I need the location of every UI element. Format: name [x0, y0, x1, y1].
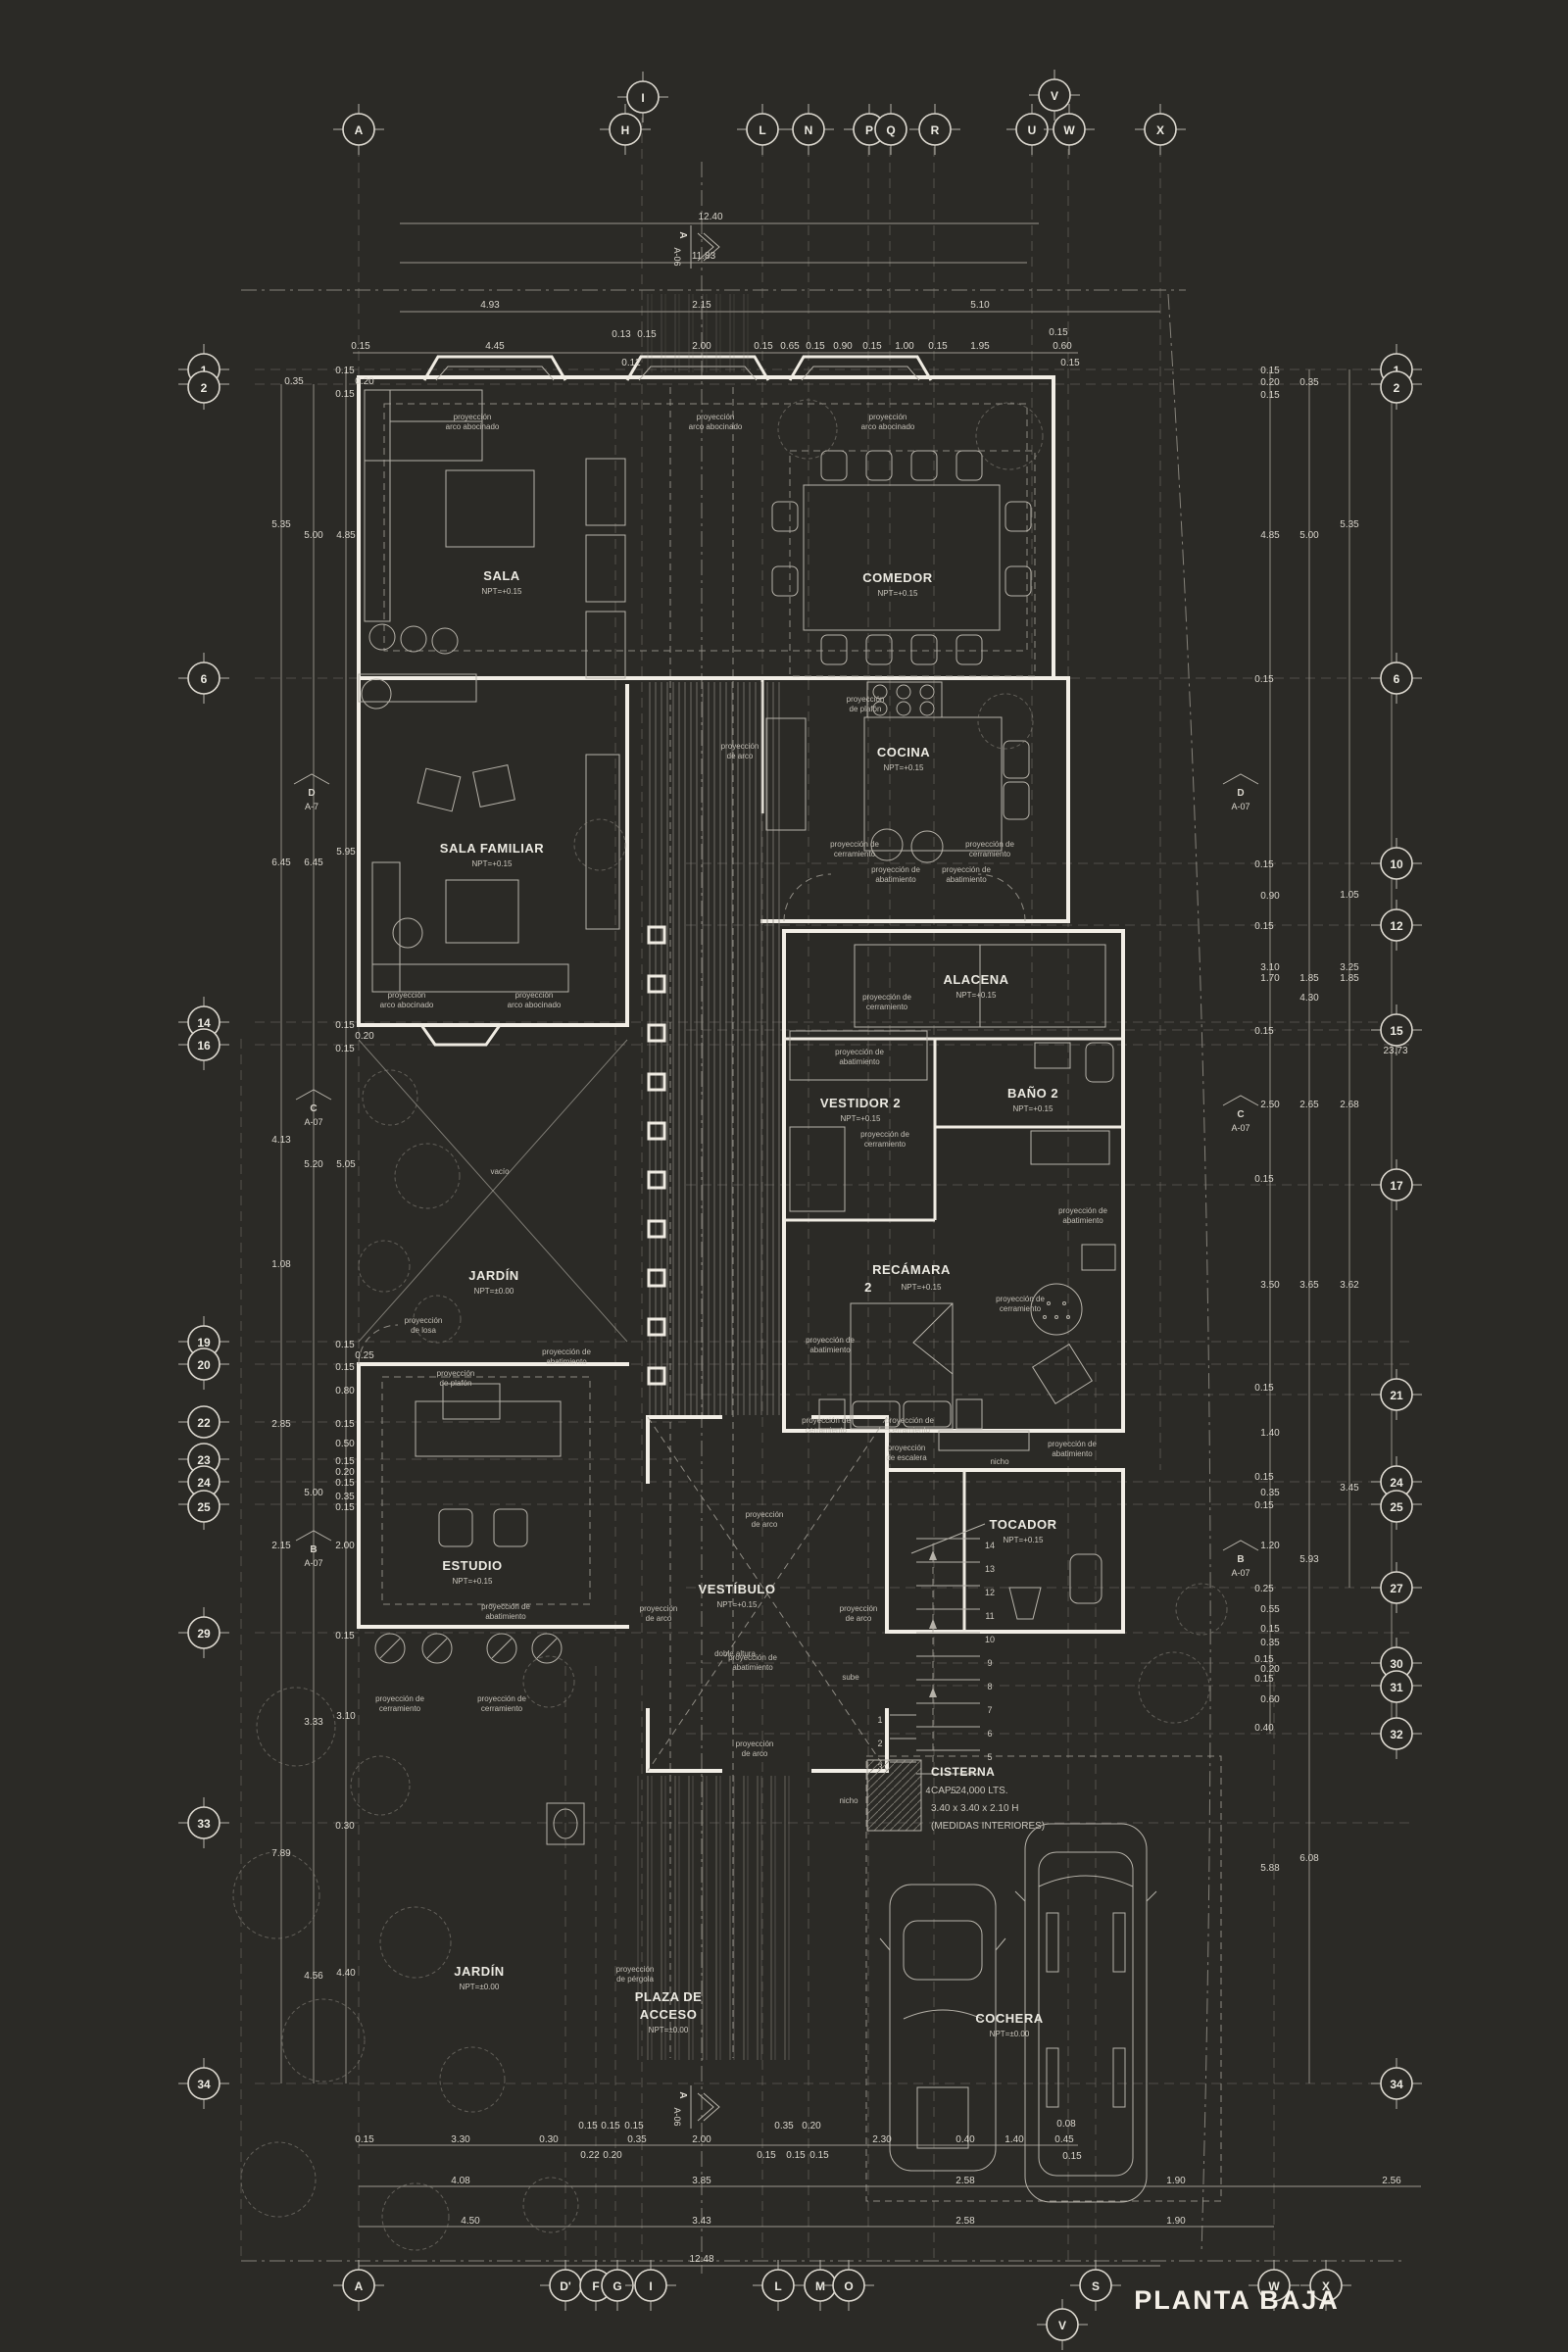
svg-text:abatimiento: abatimiento — [809, 1346, 851, 1354]
svg-text:10: 10 — [1390, 857, 1403, 871]
svg-text:1.85: 1.85 — [1299, 973, 1319, 984]
stair-number: 14 — [985, 1541, 995, 1550]
grid-bubble: 33 — [178, 1797, 229, 1848]
grid-bubble: N — [783, 104, 834, 155]
svg-text:NPT=+0.15: NPT=+0.15 — [482, 587, 522, 596]
svg-text:22: 22 — [197, 1416, 211, 1430]
svg-text:proyección de: proyección de — [728, 1653, 777, 1662]
svg-text:0.15: 0.15 — [1260, 390, 1280, 401]
svg-text:A: A — [677, 2091, 688, 2098]
svg-text:NPT=±0.00: NPT=±0.00 — [460, 1983, 500, 1991]
svg-text:de plafón: de plafón — [850, 705, 882, 713]
svg-text:23: 23 — [197, 1453, 211, 1467]
svg-text:1.70: 1.70 — [1260, 973, 1280, 984]
svg-text:V: V — [1051, 89, 1058, 103]
svg-text:0.15: 0.15 — [1254, 1500, 1274, 1511]
svg-text:3.65: 3.65 — [1299, 1280, 1319, 1291]
svg-text:arco abocinado: arco abocinado — [508, 1001, 562, 1009]
svg-text:0.55: 0.55 — [1260, 1604, 1280, 1615]
grid-bubble: 2 — [1371, 371, 1422, 410]
svg-text:0.60: 0.60 — [1260, 1694, 1280, 1705]
stair-number: 11 — [985, 1611, 994, 1621]
svg-text:0.20: 0.20 — [355, 1031, 374, 1042]
svg-text:de arco: de arco — [742, 1749, 768, 1758]
svg-text:N: N — [805, 123, 813, 137]
svg-text:proyección: proyección — [847, 695, 885, 704]
svg-text:proyección de: proyección de — [375, 1694, 424, 1703]
svg-text:0.40: 0.40 — [1254, 1723, 1274, 1734]
room-cochera: COCHERA — [975, 2011, 1043, 2026]
svg-text:2.58: 2.58 — [955, 2216, 975, 2227]
svg-text:D: D — [1237, 788, 1244, 799]
grid-bubble: S — [1070, 2260, 1121, 2311]
svg-text:D: D — [308, 788, 315, 799]
grid-bubble: A — [333, 2260, 384, 2311]
svg-text:2.68: 2.68 — [1340, 1100, 1359, 1110]
svg-text:3.45: 3.45 — [1340, 1483, 1359, 1494]
svg-text:0.15: 0.15 — [1260, 366, 1280, 376]
svg-text:NPT=+0.15: NPT=+0.15 — [841, 1114, 881, 1123]
svg-text:0.15: 0.15 — [928, 341, 948, 352]
svg-text:arco abocinado: arco abocinado — [689, 422, 743, 431]
svg-text:2: 2 — [1394, 381, 1400, 395]
room-bano2: BAÑO 2 — [1007, 1086, 1058, 1101]
room-sala: SALA — [483, 568, 520, 583]
svg-text:L: L — [759, 123, 765, 137]
svg-text:abatimiento: abatimiento — [732, 1663, 773, 1672]
svg-text:0.15: 0.15 — [806, 341, 825, 352]
svg-text:2.00: 2.00 — [692, 341, 711, 352]
svg-text:proyección: proyección — [388, 991, 426, 1000]
svg-text:de losa: de losa — [411, 1326, 436, 1335]
svg-text:proyección de: proyección de — [942, 865, 991, 874]
grid-bubble: W — [1044, 104, 1095, 155]
svg-text:0.20: 0.20 — [1260, 377, 1280, 388]
svg-text:proyección de: proyección de — [481, 1602, 530, 1611]
grid-bubble: 25 — [178, 1491, 229, 1530]
svg-text:NPT=+0.15: NPT=+0.15 — [956, 991, 997, 1000]
svg-text:C: C — [310, 1103, 317, 1114]
svg-text:arco abocinado: arco abocinado — [446, 422, 500, 431]
svg-text:0.20: 0.20 — [603, 2150, 622, 2161]
deck-hatch — [637, 294, 796, 2060]
svg-text:proyección de: proyección de — [871, 865, 920, 874]
svg-text:2.15: 2.15 — [692, 300, 711, 311]
svg-text:I: I — [641, 91, 644, 105]
vacio-label: vacío — [490, 1167, 510, 1176]
svg-text:1.90: 1.90 — [1166, 2216, 1186, 2227]
svg-text:NPT=+0.15: NPT=+0.15 — [902, 1283, 942, 1292]
stair-number: 7 — [987, 1705, 992, 1715]
svg-text:0.15: 0.15 — [335, 366, 355, 376]
svg-text:0.35: 0.35 — [335, 1492, 355, 1502]
svg-text:1.90: 1.90 — [1166, 2176, 1186, 2186]
stair-number: 2 — [877, 1739, 882, 1748]
svg-text:proyección: proyección — [736, 1739, 774, 1748]
svg-text:proyección: proyección — [437, 1369, 475, 1378]
grid-bubble: 10 — [1371, 838, 1422, 889]
svg-text:proyección: proyección — [515, 991, 554, 1000]
stair-number: 12 — [985, 1588, 995, 1597]
room-vestidor2: VESTIDOR 2 — [820, 1096, 901, 1110]
svg-text:25: 25 — [197, 1500, 211, 1514]
svg-text:0.30: 0.30 — [539, 2134, 559, 2145]
stair-number: 3 — [877, 1762, 882, 1772]
svg-text:1.85: 1.85 — [1340, 973, 1359, 984]
svg-text:abatimiento: abatimiento — [1052, 1449, 1093, 1458]
svg-text:0.15: 0.15 — [757, 2150, 776, 2161]
svg-text:D': D' — [560, 2279, 571, 2293]
room-alacena: ALACENA — [943, 972, 1008, 987]
svg-text:1.05: 1.05 — [1340, 890, 1359, 901]
grid-bubble: L — [737, 104, 788, 155]
svg-text:1.08: 1.08 — [271, 1259, 291, 1270]
grid-bubble: 15 — [1371, 1004, 1422, 1055]
svg-text:proyección: proyección — [697, 413, 735, 421]
svg-text:5.20: 5.20 — [304, 1159, 323, 1170]
svg-text:4.85: 4.85 — [1260, 530, 1280, 541]
svg-text:4.50: 4.50 — [461, 2216, 480, 2227]
svg-text:NPT=+0.15: NPT=+0.15 — [717, 1600, 758, 1609]
svg-text:2.56: 2.56 — [1382, 2176, 1401, 2186]
svg-text:3.33: 3.33 — [304, 1717, 323, 1728]
svg-text:5.00: 5.00 — [304, 530, 323, 541]
grid-bubble: 29 — [178, 1607, 229, 1658]
svg-text:proyección de: proyección de — [996, 1295, 1045, 1303]
svg-text:de pérgola: de pérgola — [616, 1975, 654, 1984]
svg-text:0.15: 0.15 — [335, 1044, 355, 1054]
grid-bubble: L — [753, 2260, 804, 2311]
svg-text:R: R — [931, 123, 940, 137]
svg-text:CAP. 24,000 LTS.: CAP. 24,000 LTS. — [931, 1786, 1008, 1796]
svg-text:1.40: 1.40 — [1260, 1428, 1280, 1439]
svg-text:3.10: 3.10 — [1260, 962, 1280, 973]
svg-text:0.15: 0.15 — [624, 2121, 644, 2131]
svg-text:4.40: 4.40 — [336, 1968, 356, 1979]
room-recamara2: RECÁMARA — [872, 1262, 951, 1277]
svg-text:0.15: 0.15 — [355, 2134, 374, 2145]
svg-text:0.15: 0.15 — [1062, 2151, 1082, 2162]
svg-text:2.85: 2.85 — [271, 1419, 291, 1430]
svg-text:proyección de: proyección de — [1048, 1440, 1097, 1448]
svg-text:34: 34 — [197, 2078, 211, 2091]
svg-text:0.15: 0.15 — [335, 1631, 355, 1641]
svg-text:0.08: 0.08 — [1056, 2119, 1076, 2130]
svg-text:proyección de: proyección de — [830, 840, 879, 849]
svg-text:A-07: A-07 — [304, 1117, 322, 1127]
stair-number: 9 — [987, 1658, 992, 1668]
svg-text:0.15: 0.15 — [578, 2121, 598, 2131]
svg-text:0.15: 0.15 — [1254, 859, 1274, 870]
svg-text:de arco: de arco — [752, 1520, 778, 1529]
svg-text:3.25: 3.25 — [1340, 962, 1359, 973]
svg-text:(MEDIDAS INTERIORES): (MEDIDAS INTERIORES) — [931, 1821, 1045, 1832]
svg-text:A: A — [677, 231, 688, 238]
svg-text:6.45: 6.45 — [271, 857, 291, 868]
svg-text:0.15: 0.15 — [1254, 1383, 1274, 1394]
grid-bubble: 2 — [178, 371, 229, 410]
svg-text:abatimiento: abatimiento — [839, 1057, 880, 1066]
svg-text:2.30: 2.30 — [872, 2134, 892, 2145]
grid-bubble: V — [1029, 70, 1080, 121]
svg-text:proyección: proyección — [840, 1604, 878, 1613]
svg-text:A-07: A-07 — [1231, 1568, 1249, 1578]
svg-text:6.45: 6.45 — [304, 857, 323, 868]
svg-text:0.35: 0.35 — [284, 376, 304, 387]
svg-text:cerramiento: cerramiento — [969, 850, 1011, 858]
svg-text:proyección: proyección — [721, 742, 759, 751]
grid-bubble: 21 — [1371, 1369, 1422, 1420]
dimension-lines — [281, 223, 1421, 2266]
svg-text:0.20: 0.20 — [355, 376, 374, 387]
section-marker-c-right: C A-07 — [1223, 1096, 1258, 1133]
svg-text:proyección de: proyección de — [860, 1130, 909, 1139]
svg-text:0.90: 0.90 — [1260, 891, 1280, 902]
room-vestibulo: VESTÍBULO — [699, 1582, 776, 1596]
svg-text:proyección de: proyección de — [1058, 1206, 1107, 1215]
svg-text:proyección de: proyección de — [542, 1347, 591, 1356]
svg-text:abatimiento: abatimiento — [946, 875, 987, 884]
svg-text:5.00: 5.00 — [304, 1488, 323, 1498]
svg-text:cerramiento: cerramiento — [379, 1704, 421, 1713]
svg-text:4.13: 4.13 — [271, 1135, 291, 1146]
svg-text:25: 25 — [1390, 1500, 1403, 1514]
grid-bubble: 20 — [178, 1348, 229, 1390]
svg-text:4.45: 4.45 — [485, 341, 505, 352]
stair-number: 6 — [987, 1729, 992, 1739]
svg-text:0.15: 0.15 — [1260, 1624, 1280, 1635]
room-comedor: COMEDOR — [862, 570, 933, 585]
grid-bubble: 6 — [1371, 653, 1422, 704]
svg-text:0.15: 0.15 — [1060, 358, 1080, 368]
svg-text:1.40: 1.40 — [1004, 2134, 1024, 2145]
svg-text:0.15: 0.15 — [335, 1478, 355, 1489]
grid-bubble: 12 — [1371, 900, 1422, 951]
svg-text:6: 6 — [201, 672, 208, 686]
svg-text:NPT=±0.00: NPT=±0.00 — [649, 2026, 689, 2034]
svg-text:4.30: 4.30 — [1299, 993, 1319, 1004]
svg-text:arco abocinado: arco abocinado — [861, 422, 915, 431]
svg-text:12.48: 12.48 — [689, 2254, 713, 2265]
drawing-title: PLANTA BAJA — [1134, 2285, 1340, 2315]
svg-text:M: M — [815, 2279, 825, 2293]
svg-text:0.15: 0.15 — [1254, 1674, 1274, 1685]
svg-text:de arco: de arco — [727, 752, 754, 760]
svg-text:0.15: 0.15 — [1049, 327, 1068, 338]
svg-text:G: G — [612, 2279, 621, 2293]
svg-text:14: 14 — [197, 1016, 211, 1030]
svg-text:0.15: 0.15 — [335, 1456, 355, 1467]
svg-text:3.30: 3.30 — [451, 2134, 470, 2145]
svg-text:NPT=+0.15: NPT=+0.15 — [1013, 1104, 1053, 1113]
svg-text:1.00: 1.00 — [895, 341, 914, 352]
svg-text:0.15: 0.15 — [335, 1340, 355, 1350]
section-marker-d-left: D A-7 — [294, 774, 329, 811]
svg-text:0.90: 0.90 — [833, 341, 853, 352]
svg-text:F: F — [592, 2279, 599, 2293]
svg-text:0.15: 0.15 — [335, 1020, 355, 1031]
svg-text:A-07: A-07 — [304, 1558, 322, 1568]
svg-text:0.15: 0.15 — [1254, 1174, 1274, 1185]
svg-text:proyección de: proyección de — [885, 1416, 934, 1425]
svg-text:5.05: 5.05 — [336, 1159, 356, 1170]
svg-text:proyección: proyección — [616, 1965, 655, 1974]
svg-text:B: B — [1237, 1554, 1244, 1565]
svg-text:abatimiento: abatimiento — [485, 1612, 526, 1621]
section-marker-b-right: B A-07 — [1223, 1541, 1258, 1578]
svg-text:B: B — [310, 1544, 317, 1555]
svg-text:0.15: 0.15 — [351, 341, 370, 352]
svg-text:NPT=±0.00: NPT=±0.00 — [474, 1287, 514, 1296]
svg-text:19: 19 — [197, 1336, 211, 1349]
svg-text:A: A — [355, 2279, 364, 2293]
stair-number: 13 — [985, 1564, 995, 1574]
svg-text:0.20: 0.20 — [802, 2121, 821, 2131]
svg-text:0.15: 0.15 — [1254, 674, 1274, 685]
svg-text:0.15: 0.15 — [335, 389, 355, 400]
svg-text:29: 29 — [197, 1627, 211, 1641]
svg-text:P: P — [865, 123, 873, 137]
room-jardin: JARDÍN — [468, 1268, 518, 1283]
svg-text:2.65: 2.65 — [1299, 1100, 1319, 1110]
svg-text:de arco: de arco — [646, 1614, 672, 1623]
svg-text:5.93: 5.93 — [1299, 1554, 1319, 1565]
svg-text:CISTERNA: CISTERNA — [931, 1765, 995, 1779]
svg-text:4.85: 4.85 — [336, 530, 356, 541]
svg-text:0.35: 0.35 — [1260, 1488, 1280, 1498]
svg-text:31: 31 — [1390, 1681, 1403, 1694]
svg-text:5.88: 5.88 — [1260, 1863, 1280, 1874]
room-sala-familiar: SALA FAMILIAR — [440, 841, 545, 856]
grid-bubble: 34 — [1371, 2058, 1422, 2109]
svg-text:NPT=+0.15: NPT=+0.15 — [453, 1577, 493, 1586]
svg-text:0.15: 0.15 — [754, 341, 773, 352]
grid-lines — [241, 118, 1411, 2274]
grid-bubble: 17 — [1371, 1159, 1422, 1210]
svg-text:cerramiento: cerramiento — [864, 1140, 906, 1149]
svg-text:5.95: 5.95 — [336, 847, 356, 857]
grid-bubble: 34 — [178, 2058, 229, 2109]
svg-text:proyección de: proyección de — [806, 1336, 855, 1345]
svg-text:21: 21 — [1390, 1389, 1403, 1402]
svg-text:0.35: 0.35 — [1260, 1638, 1280, 1648]
grid-bubble: X — [1135, 104, 1186, 155]
svg-text:NPT=+0.15: NPT=+0.15 — [878, 589, 918, 598]
svg-text:6: 6 — [1394, 672, 1400, 686]
svg-text:proyección: proyección — [640, 1604, 678, 1613]
svg-text:0.15: 0.15 — [1254, 1472, 1274, 1483]
svg-text:H: H — [621, 123, 630, 137]
svg-text:12.40: 12.40 — [698, 212, 722, 222]
svg-text:de plafón: de plafón — [440, 1379, 472, 1388]
grid-bubble: 32 — [1371, 1708, 1422, 1759]
svg-text:0.12: 0.12 — [621, 358, 641, 368]
svg-text:0.15: 0.15 — [1254, 921, 1274, 932]
cisterna-label: CISTERNA CAP. 24,000 LTS. 3.40 x 3.40 x … — [931, 1765, 1045, 1832]
svg-text:proyección: proyección — [454, 413, 492, 421]
svg-text:0.15: 0.15 — [786, 2150, 806, 2161]
room-cocina: COCINA — [877, 745, 930, 759]
svg-text:3.50: 3.50 — [1260, 1280, 1280, 1291]
stair-number: 8 — [987, 1682, 992, 1691]
svg-text:NPT=+0.15: NPT=+0.15 — [472, 859, 513, 868]
stair-number: 4 — [925, 1786, 930, 1795]
stair-sube-label: sube — [842, 1673, 859, 1682]
svg-text:5.35: 5.35 — [1340, 519, 1359, 530]
svg-text:0.15: 0.15 — [809, 2150, 829, 2161]
svg-text:A-06: A-06 — [672, 247, 682, 266]
svg-text:27: 27 — [1390, 1582, 1403, 1595]
svg-text:proyección: proyección — [869, 413, 907, 421]
svg-text:proyección de: proyección de — [862, 993, 911, 1002]
grid-bubble: V — [1037, 2299, 1088, 2350]
svg-text:abatimiento: abatimiento — [875, 875, 916, 884]
svg-text:5.35: 5.35 — [271, 519, 291, 530]
svg-text:0.35: 0.35 — [774, 2121, 794, 2131]
grid-bubble: Q — [875, 104, 906, 155]
svg-text:U: U — [1028, 123, 1037, 137]
svg-text:0.15: 0.15 — [1254, 1026, 1274, 1037]
svg-text:NPT=±0.00: NPT=±0.00 — [990, 2030, 1030, 2038]
svg-text:A: A — [355, 123, 364, 137]
svg-text:S: S — [1092, 2279, 1100, 2293]
svg-text:0.20: 0.20 — [335, 1467, 355, 1478]
svg-text:3.10: 3.10 — [336, 1711, 356, 1722]
stair-number: 1 — [877, 1715, 882, 1725]
svg-text:de arco: de arco — [846, 1614, 872, 1623]
svg-text:0.50: 0.50 — [335, 1439, 355, 1449]
svg-text:7.89: 7.89 — [271, 1848, 291, 1859]
svg-text:3.62: 3.62 — [1340, 1280, 1359, 1291]
svg-text:5.00: 5.00 — [1299, 530, 1319, 541]
svg-text:abatimiento: abatimiento — [1062, 1216, 1103, 1225]
svg-text:C: C — [1237, 1109, 1244, 1120]
section-marker-a06-top: A A-06 — [672, 225, 719, 269]
svg-text:0.15: 0.15 — [637, 329, 657, 340]
svg-text:34: 34 — [1390, 2078, 1403, 2091]
svg-text:arco abocinado: arco abocinado — [380, 1001, 434, 1009]
svg-text:16: 16 — [197, 1039, 211, 1053]
svg-text:3.40 x 3.40 x 2.10 H: 3.40 x 3.40 x 2.10 H — [931, 1803, 1019, 1814]
svg-text:abatimiento: abatimiento — [546, 1357, 587, 1366]
svg-text:0.65: 0.65 — [780, 341, 800, 352]
grid-bubble: 27 — [1371, 1562, 1422, 1613]
svg-text:NPT=+0.15: NPT=+0.15 — [1004, 1536, 1044, 1544]
svg-text:nicho: nicho — [990, 1457, 1009, 1466]
svg-text:2.00: 2.00 — [335, 1541, 355, 1551]
svg-text:Q: Q — [886, 123, 895, 137]
svg-text:cerramiento: cerramiento — [866, 1003, 908, 1011]
svg-text:4.08: 4.08 — [451, 2176, 470, 2186]
svg-text:proyección de: proyección de — [802, 1416, 851, 1425]
svg-text:2: 2 — [864, 1280, 872, 1295]
svg-text:3.85: 3.85 — [692, 2176, 711, 2186]
svg-text:L: L — [774, 2279, 781, 2293]
grid-bubble: 6 — [178, 653, 229, 704]
section-marker-d-right: D A-07 — [1223, 774, 1258, 811]
svg-text:33: 33 — [197, 1817, 211, 1831]
svg-text:proyección de: proyección de — [477, 1694, 526, 1703]
svg-text:cerramiento: cerramiento — [806, 1426, 848, 1435]
svg-text:0.40: 0.40 — [955, 2134, 975, 2145]
svg-text:cerramiento: cerramiento — [834, 850, 876, 858]
svg-text:20: 20 — [197, 1358, 211, 1372]
svg-text:0.22: 0.22 — [580, 2150, 600, 2161]
room-jardin2: JARDÍN — [454, 1964, 504, 1979]
svg-text:NPT=+0.15: NPT=+0.15 — [884, 763, 924, 772]
svg-text:6.08: 6.08 — [1299, 1853, 1319, 1864]
grid-bubble: 31 — [1371, 1671, 1422, 1711]
